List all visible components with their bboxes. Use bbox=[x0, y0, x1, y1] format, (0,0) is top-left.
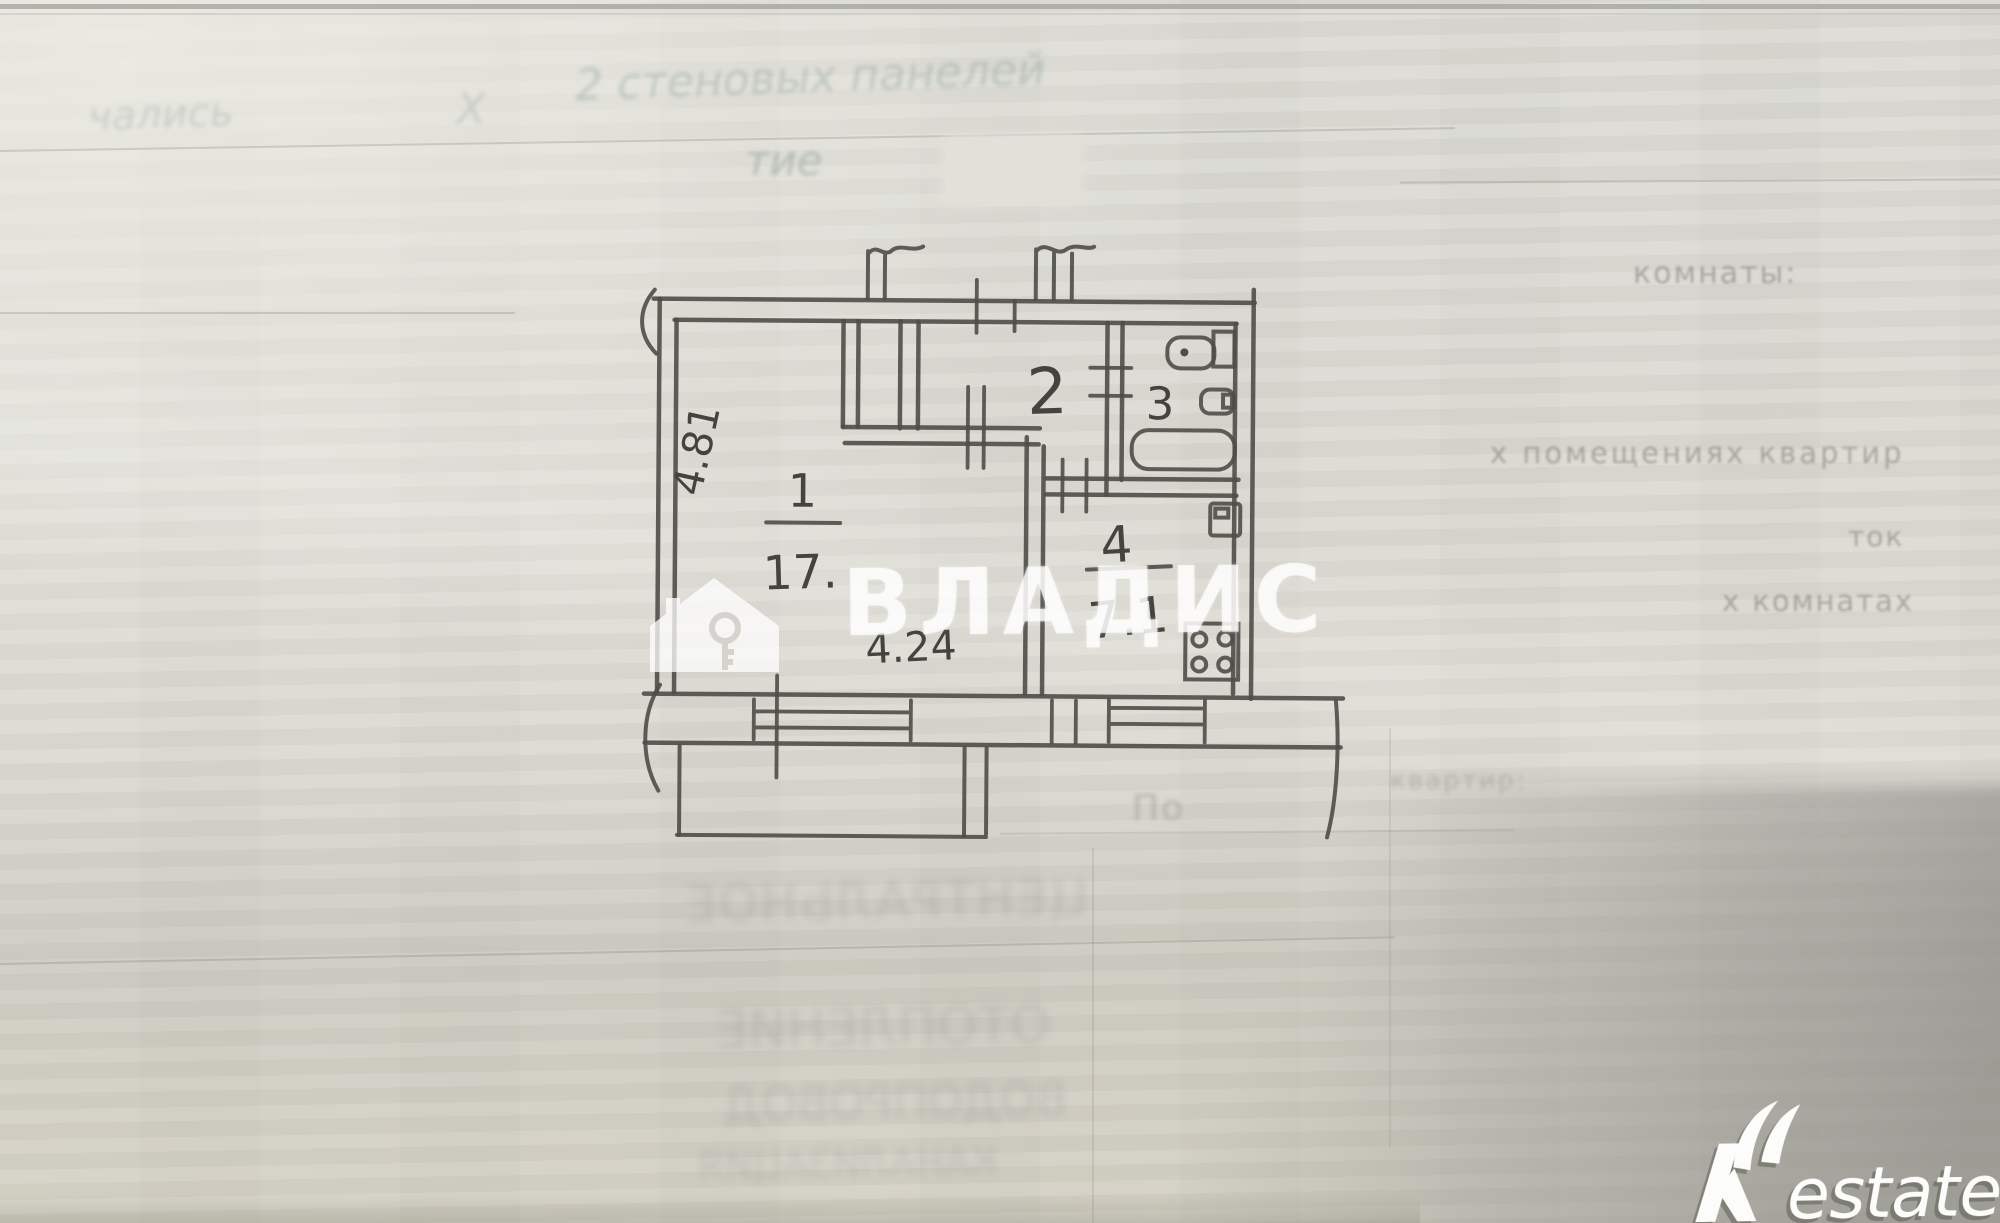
watermark-brand: ВЛАДИС bbox=[842, 546, 1329, 657]
balcony bbox=[677, 746, 987, 837]
balcony-left bbox=[679, 746, 680, 835]
vent-marks bbox=[868, 245, 1094, 300]
house-key-icon bbox=[638, 566, 796, 676]
toilet-icon bbox=[1167, 337, 1214, 368]
room3-number: 3 bbox=[1146, 377, 1175, 430]
room2-number: 2 bbox=[1026, 355, 1069, 430]
faint-handwriting: 2 стеновых панелей bbox=[574, 44, 1046, 111]
burner-icon bbox=[1218, 658, 1232, 672]
toilet-dot bbox=[1180, 348, 1188, 356]
bleed-through-text: ВОДОПРОВОД bbox=[725, 1072, 1068, 1132]
window-kitchen bbox=[1109, 700, 1205, 743]
closet-wall-right bbox=[900, 321, 919, 428]
vent-symbol-1 bbox=[868, 246, 923, 298]
windows bbox=[753, 675, 1205, 780]
kitchen-door-ticks bbox=[1062, 460, 1086, 512]
hall-wall bbox=[843, 427, 1040, 444]
bleed-through-text: ОТОПЛЕНИЕ bbox=[715, 995, 1052, 1061]
bleed-through-text: КАНАЛИЗАЦИЯ bbox=[698, 1139, 998, 1188]
toilet-tank-icon bbox=[1213, 332, 1234, 367]
vent-symbol-2 bbox=[1036, 246, 1094, 299]
bathroom-door-ticks bbox=[1090, 368, 1131, 396]
wall-break-bottom-left bbox=[645, 685, 660, 791]
paper-edge-line bbox=[0, 4, 2000, 9]
room1-underline bbox=[766, 522, 840, 523]
form-label-rooms: комнаты: bbox=[1633, 256, 1797, 291]
window-tick bbox=[776, 676, 777, 778]
bathtub-icon bbox=[1132, 430, 1235, 470]
sink-tap-icon bbox=[1223, 395, 1232, 408]
faint-handwriting: Х bbox=[456, 84, 486, 135]
whiteout-patch bbox=[945, 138, 1080, 202]
wall-top-inner bbox=[675, 320, 1237, 324]
wall-bottom-inner bbox=[645, 743, 1341, 748]
form-label-komnatah: х комнатах bbox=[1722, 584, 1914, 618]
ruled-line bbox=[1400, 178, 2000, 183]
wall-jamb-ticks bbox=[1052, 700, 1076, 742]
room1-height-dim: 4.81 bbox=[663, 400, 729, 499]
restate-logo: estate bbox=[1619, 1067, 2000, 1223]
balcony-bottom bbox=[677, 835, 986, 837]
wall-top-outer bbox=[654, 299, 1255, 303]
paper-edge-line-2 bbox=[0, 13, 2000, 15]
form-label-tok: ток bbox=[1848, 520, 1904, 553]
bathroom-wall-left bbox=[1106, 323, 1122, 495]
closet-wall-left bbox=[843, 321, 859, 427]
bathroom-wall-bottom bbox=[1046, 478, 1238, 495]
burner-icon bbox=[1192, 657, 1206, 671]
wall-bottom-outer bbox=[644, 694, 1343, 699]
photo-bottom-shadow bbox=[0, 1195, 1420, 1223]
floor-plan-photo: чались Х 2 стеновых панелей тие комнаты:… bbox=[0, 0, 2000, 1223]
room1-number: 1 bbox=[788, 464, 818, 518]
ruled-line bbox=[0, 312, 515, 314]
form-label-premises: х помещениях квартир bbox=[1490, 436, 1905, 470]
restate-wordmark: estate bbox=[1786, 1150, 2000, 1223]
faint-handwriting: тие bbox=[745, 136, 823, 185]
kitchen-sink-tap-icon bbox=[1215, 509, 1228, 518]
faint-handwriting: чались bbox=[87, 89, 234, 140]
entry-door-ticks bbox=[977, 280, 1015, 333]
balcony-right bbox=[964, 748, 987, 836]
